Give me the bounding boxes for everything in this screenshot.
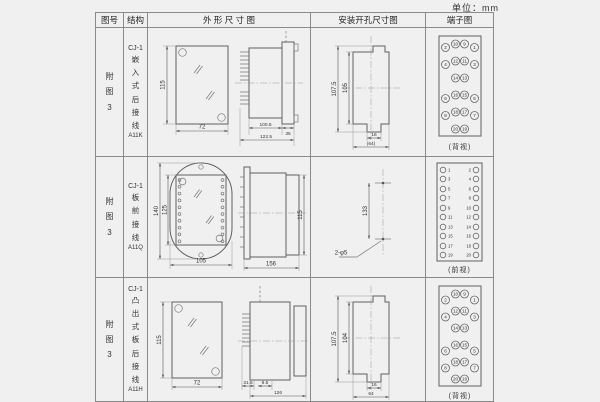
dim-label: 9.5 [262, 380, 269, 386]
terminal-diagram-front-a11q: 1 3 5 7 9 11 13 15 17 19 2 4 6 8 [426, 157, 493, 277]
view-label: (前视) [448, 265, 471, 274]
hole-spec-label: 2-φ5 [335, 251, 348, 257]
svg-text:16: 16 [466, 234, 471, 239]
svg-text:11: 11 [448, 215, 453, 220]
fig-no-label: 附图3 [105, 194, 115, 240]
dim-label: 72 [199, 125, 206, 131]
install-drawing-a11h: 107.5 104 16 64 [311, 278, 425, 401]
svg-text:9: 9 [463, 42, 466, 47]
dim-label: (64) [367, 141, 376, 147]
svg-text:18: 18 [453, 110, 459, 115]
spec-table: 图号 结构 外 形 尺 寸 图 安装开孔尺寸图 端子图 附图3 CJ-1 嵌入式… [95, 12, 494, 402]
dim-label: 133 [363, 205, 369, 216]
svg-text:4: 4 [444, 315, 447, 320]
table-row-a11k: 附图3 CJ-1 嵌入式后接线 A11K [96, 28, 494, 157]
dim-label: 31.5 [243, 380, 253, 386]
dim-label: 107.5 [332, 331, 338, 347]
cell-terminal-2: 1 3 5 7 9 11 13 15 17 19 2 4 6 8 [426, 157, 494, 278]
cell-install-2: 133 2-φ5 [311, 157, 426, 278]
dim-label: 125 [163, 204, 169, 215]
svg-text:6: 6 [469, 187, 472, 192]
cell-terminal-1: 2 10 9 1 4 12 11 3 14 13 6 16 15 5 [426, 28, 494, 157]
dim-label: 105 [196, 259, 207, 265]
structure-label: 板前接线 [131, 191, 140, 244]
dim-label: 16 [371, 132, 377, 138]
side-view: 100.5 35 122.5 [235, 31, 303, 146]
svg-text:18: 18 [466, 244, 471, 249]
dim-label: 35 [285, 131, 291, 137]
dim-label: 100.5 [259, 122, 271, 128]
dim-label: 104 [343, 332, 349, 343]
svg-text:14: 14 [453, 76, 459, 81]
svg-text:14: 14 [453, 326, 459, 331]
svg-text:8: 8 [444, 366, 447, 371]
view-label: (背视) [449, 142, 472, 151]
svg-text:13: 13 [448, 225, 453, 230]
cell-structure-3: CJ-1 凸出式板后接线 A11H [124, 278, 148, 402]
svg-text:7: 7 [473, 366, 476, 371]
dim-label: 115 [298, 210, 304, 220]
header-install: 安装开孔尺寸图 [311, 13, 426, 28]
cell-outline-1: 115 72 [148, 28, 311, 157]
svg-text:14: 14 [466, 225, 471, 230]
dim-label: 16 [371, 382, 377, 388]
cell-fig-no-2: 附图3 [96, 157, 124, 278]
fig-no-label: 附图3 [105, 69, 115, 115]
svg-text:16: 16 [453, 93, 459, 98]
svg-text:19: 19 [462, 377, 468, 382]
header-terminal: 端子图 [426, 13, 494, 28]
svg-text:17: 17 [462, 360, 468, 365]
svg-text:15: 15 [462, 93, 468, 98]
dim-label: 64 [368, 391, 374, 397]
outline-drawing-a11q: 140 125 105 [148, 157, 310, 277]
dim-label: 126 [274, 390, 282, 396]
cell-install-1: 107.5 105 16 (64) [311, 28, 426, 157]
model-label: CJ-1 [128, 45, 143, 52]
table-row-a11h: 附图3 CJ-1 凸出式板后接线 A11H [96, 278, 494, 402]
svg-text:1: 1 [473, 298, 476, 303]
dim-label: 156 [266, 262, 277, 268]
dim-label: 107.5 [332, 81, 338, 97]
cell-structure-2: CJ-1 板前接线 A11Q [124, 157, 148, 278]
cell-outline-3: 115 72 [148, 278, 311, 402]
svg-text:20: 20 [466, 253, 471, 258]
svg-text:9: 9 [463, 292, 466, 297]
structure-label: 嵌入式后接线 [131, 53, 140, 132]
structure-code: A11K [128, 133, 142, 139]
svg-text:12: 12 [453, 59, 459, 64]
svg-text:10: 10 [453, 292, 459, 297]
svg-text:12: 12 [466, 215, 471, 220]
install-drawing-a11q: 133 2-φ5 [311, 157, 425, 277]
dim-label: 105 [343, 82, 349, 93]
cell-outline-2: 140 125 105 [148, 157, 311, 278]
terminal-grid: 1 3 5 7 9 11 13 15 17 19 2 4 6 8 [440, 167, 479, 258]
svg-text:20: 20 [453, 127, 459, 132]
fig-no-label: 附图3 [105, 317, 115, 363]
svg-text:18: 18 [453, 360, 459, 365]
svg-text:5: 5 [448, 187, 451, 192]
model-label: CJ-1 [128, 286, 143, 293]
svg-text:1: 1 [448, 168, 451, 173]
svg-text:17: 17 [448, 244, 453, 249]
svg-text:1: 1 [473, 45, 476, 50]
dim-label: 115 [157, 335, 163, 345]
svg-text:15: 15 [462, 343, 468, 348]
outline-drawing-a11k: 115 72 [148, 28, 310, 156]
svg-text:19: 19 [448, 253, 453, 258]
svg-text:3: 3 [448, 177, 451, 182]
dim-label: 72 [194, 381, 201, 387]
svg-text:20: 20 [453, 377, 459, 382]
header-structure: 结构 [124, 13, 148, 28]
terminal-grid: 2 10 9 1 4 12 11 3 14 13 6 16 15 5 [442, 40, 479, 133]
header-row: 图号 结构 外 形 尺 寸 图 安装开孔尺寸图 端子图 [96, 13, 494, 28]
svg-text:13: 13 [462, 76, 468, 81]
terminal-diagram-rear-a11k: 2 10 9 1 4 12 11 3 14 13 6 16 15 5 [426, 28, 493, 156]
terminal-diagram-rear-a11h: 2 10 9 1 4 12 11 3 14 13 6 16 15 5 [426, 278, 493, 401]
svg-text:6: 6 [444, 96, 447, 101]
header-outline: 外 形 尺 寸 图 [148, 13, 311, 28]
svg-text:11: 11 [462, 309, 467, 314]
svg-text:2: 2 [469, 168, 472, 173]
front-view: 115 72 [161, 46, 229, 135]
svg-text:7: 7 [448, 196, 451, 201]
cell-structure-1: CJ-1 嵌入式后接线 A11K [124, 28, 148, 157]
install-drawing-a11k: 107.5 105 16 (64) [311, 28, 425, 156]
svg-text:11: 11 [462, 59, 467, 64]
svg-text:5: 5 [473, 96, 476, 101]
model-label: CJ-1 [128, 183, 143, 190]
cell-fig-no-3: 附图3 [96, 278, 124, 402]
table-row-a11q: 附图3 CJ-1 板前接线 A11Q [96, 157, 494, 278]
svg-text:17: 17 [462, 110, 468, 115]
outline-drawing-a11h: 115 72 [148, 278, 310, 401]
dim-label: 115 [161, 80, 167, 90]
dim-label: 140 [154, 205, 160, 216]
svg-text:4: 4 [469, 177, 472, 182]
structure-label: 凸出式板后接线 [131, 294, 140, 386]
svg-text:16: 16 [453, 343, 459, 348]
svg-text:2: 2 [444, 45, 447, 50]
svg-text:10: 10 [453, 42, 459, 47]
dim-label: 122.5 [260, 134, 272, 140]
svg-text:19: 19 [462, 127, 468, 132]
svg-text:3: 3 [473, 315, 476, 320]
svg-text:4: 4 [444, 62, 447, 67]
front-view: 140 125 105 [154, 163, 232, 269]
cell-install-3: 107.5 104 16 64 [311, 278, 426, 402]
view-label: (背视) [449, 391, 472, 400]
svg-text:10: 10 [466, 206, 471, 211]
header-fig-no: 图号 [96, 13, 124, 28]
svg-text:8: 8 [469, 196, 472, 201]
svg-text:2: 2 [444, 298, 447, 303]
svg-text:7: 7 [473, 113, 476, 118]
svg-text:6: 6 [444, 349, 447, 354]
svg-text:13: 13 [462, 326, 468, 331]
svg-text:3: 3 [473, 62, 476, 67]
svg-text:8: 8 [444, 113, 447, 118]
svg-text:5: 5 [473, 349, 476, 354]
structure-code: A11Q [128, 245, 143, 251]
structure-code: A11H [128, 387, 143, 393]
front-view: 115 72 [157, 302, 222, 390]
cell-terminal-3: 2 10 9 1 4 12 11 3 14 13 6 16 15 5 [426, 278, 494, 402]
terminal-grid: 2 10 9 1 4 12 11 3 14 13 6 16 15 5 [442, 290, 479, 383]
svg-text:15: 15 [448, 234, 453, 239]
svg-text:12: 12 [453, 309, 459, 314]
svg-text:9: 9 [448, 206, 451, 211]
side-view: 31.5 9.5 126 [238, 286, 308, 399]
cell-fig-no-1: 附图3 [96, 28, 124, 157]
side-view: 156 115 [238, 167, 307, 271]
